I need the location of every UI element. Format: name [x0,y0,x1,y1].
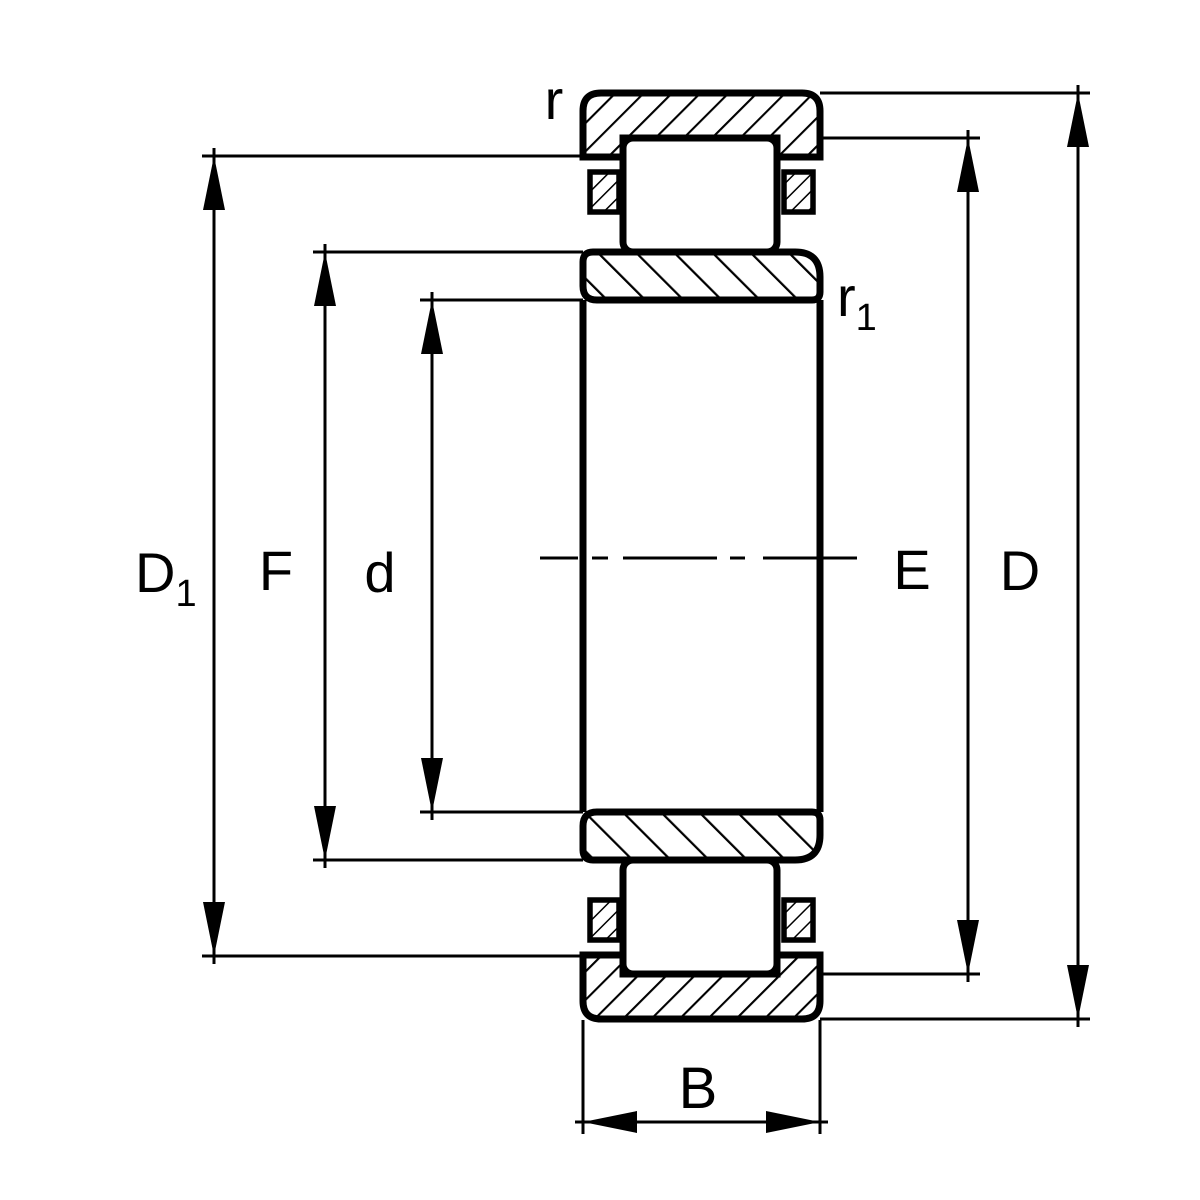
cage-bar-bottom-left [590,900,619,940]
bearing-cross-section-diagram: D1 F d E D [0,0,1200,1200]
roller-bottom [623,860,777,974]
label-d: d [364,541,395,604]
dimension-d-arrow-up-icon [421,300,443,354]
dimension-d-arrow-down-icon [421,758,443,812]
roller-top [623,138,777,252]
dimension-D1-arrow-up-icon [203,156,225,210]
dimension-d: d [364,292,583,820]
dimension-E-arrow-up-icon [957,138,979,192]
dimension-E-arrow-down-icon [957,920,979,974]
cage-bar-top-right [784,172,813,212]
dimension-D1: D1 [135,148,583,964]
dimension-F-arrow-up-icon [314,252,336,306]
dimension-D1-arrow-down-icon [203,902,225,956]
inner-ring-top-section [583,252,820,300]
dimension-D-arrow-down-icon [1067,965,1089,1019]
dimension-D-arrow-up-icon [1067,93,1089,147]
inner-ring-bottom-section [583,812,820,860]
dimension-B-arrow-right-icon [766,1111,820,1133]
label-F: F [259,539,293,602]
bearing-dimension-drawing: D1 F d E D [0,0,1200,1200]
cage-bar-bottom-right [784,900,813,940]
label-D1: D1 [135,541,197,615]
dimension-F-arrow-down-icon [314,806,336,860]
label-E: E [893,538,930,601]
cage-bar-top-left [590,172,619,212]
dimension-D: D [820,85,1090,1027]
dimension-E: E [820,130,980,982]
label-D: D [1000,539,1040,602]
label-r: r [545,68,564,131]
label-B: B [679,1056,718,1121]
dimension-F: F [259,244,583,868]
dimension-B-arrow-left-icon [583,1111,637,1133]
label-r1: r1 [837,265,877,339]
dimension-B: B [575,1020,828,1134]
